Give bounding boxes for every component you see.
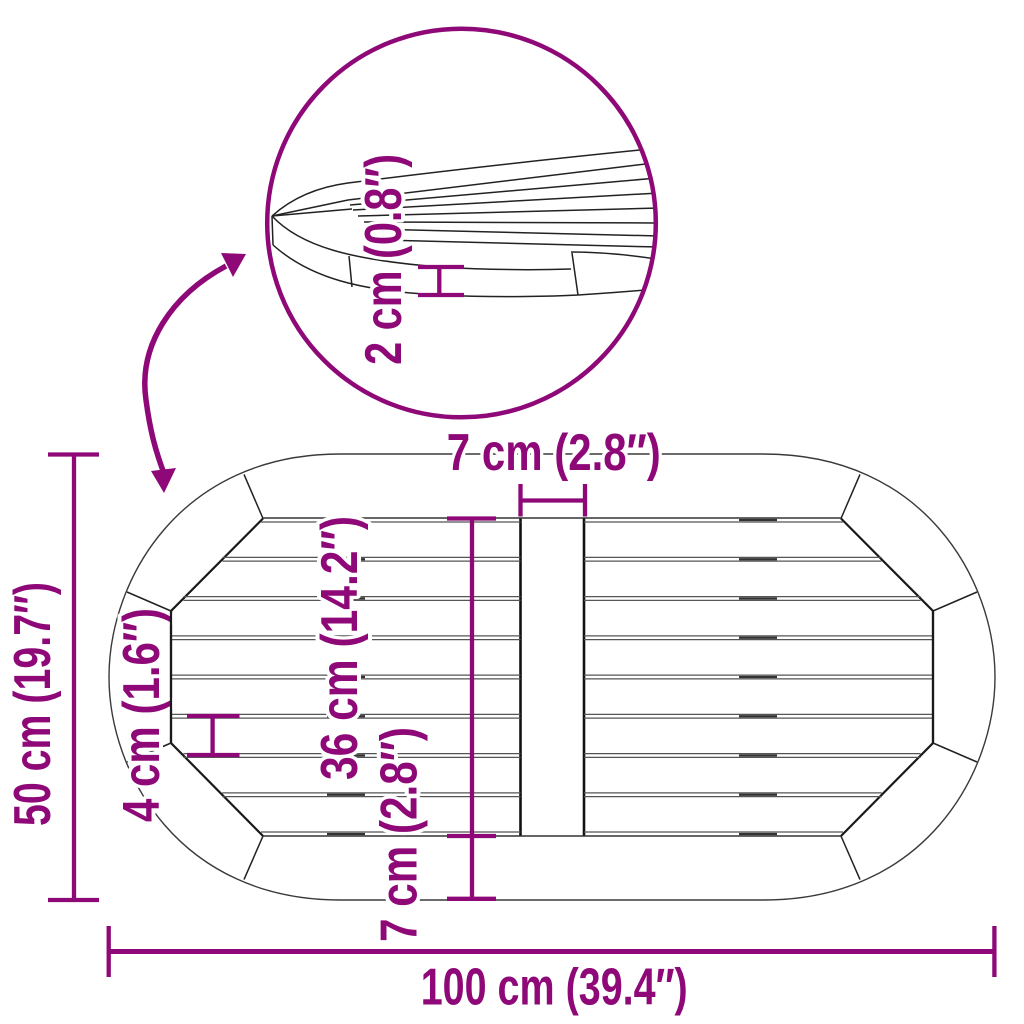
- svg-text:100 cm (39.4″): 100 cm (39.4″): [421, 959, 688, 1017]
- svg-text:36 cm (14.2″): 36 cm (14.2″): [311, 516, 369, 780]
- svg-text:7 cm (2.8″): 7 cm (2.8″): [447, 424, 661, 482]
- svg-text:7 cm (2.8″): 7 cm (2.8″): [371, 727, 429, 942]
- svg-text:4 cm (1.6″): 4 cm (1.6″): [113, 608, 171, 822]
- svg-text:2 cm (0.8″): 2 cm (0.8″): [355, 154, 413, 365]
- svg-text:50 cm (19.7″): 50 cm (19.7″): [4, 582, 62, 826]
